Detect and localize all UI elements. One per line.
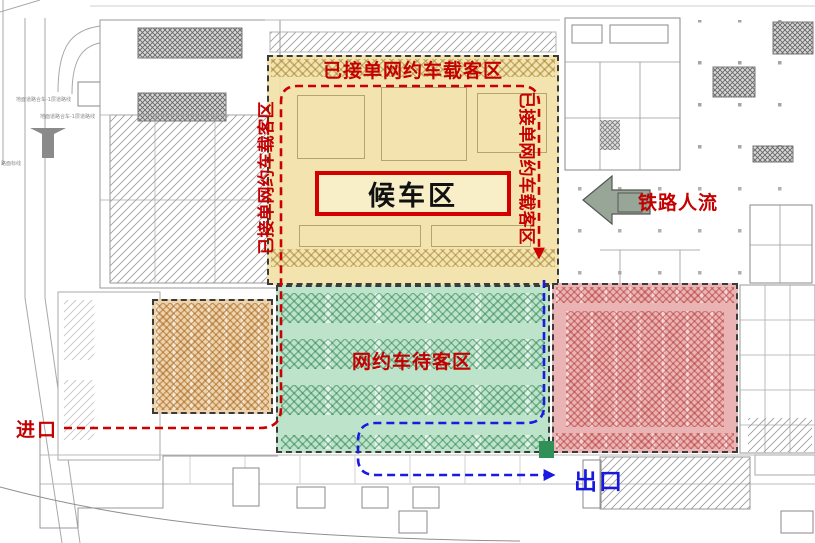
pickup-zone-label-left: 已接单网约车载客区 [252, 93, 272, 263]
entrance-label: 进口 [16, 415, 58, 442]
waiting-hall-box: 候车区 [315, 171, 511, 216]
waiting-hall-label: 候车区 [368, 174, 458, 213]
pickup-zone-label-right: 已接单网约车载客区 [521, 83, 541, 253]
exit-label: 出口 [574, 462, 624, 496]
entrance-route-red-dashed [64, 86, 539, 428]
pickup-zone-label-top: 已接单网约车载客区 [322, 56, 504, 83]
queue-zone-label: 网约车待客区 [352, 347, 472, 374]
exit-route-blue-dashed [358, 280, 552, 475]
floor-plan-diagram: 已接单网约车载客区 已接单网约车载客区 已接单网约车载客区 候车区 铁路人流 网… [0, 0, 815, 543]
rail-flow-label: 铁路人流 [638, 188, 718, 215]
